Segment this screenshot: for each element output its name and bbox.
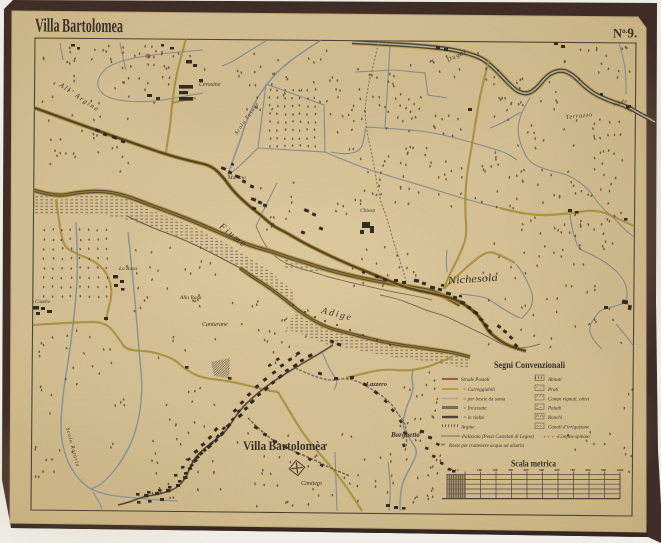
svg-text:Lazzero: Lazzero bbox=[365, 381, 388, 388]
svg-text:Strade Postali: Strade Postali bbox=[461, 378, 490, 383]
svg-text:Scala metrica: Scala metrica bbox=[511, 459, 556, 469]
svg-text:Villa Bartolomea: Villa Bartolomea bbox=[35, 16, 123, 38]
svg-text:Cimitero: Cimitero bbox=[301, 481, 322, 487]
svg-text:Confine spinato: Confine spinato bbox=[558, 435, 590, 440]
svg-text:Borghetto: Borghetto bbox=[390, 431, 420, 439]
svg-text:200: 200 bbox=[493, 468, 498, 472]
svg-text:Chiesa: Chiesa bbox=[360, 208, 376, 214]
svg-text:600: 600 bbox=[555, 468, 560, 472]
svg-text:Segni Convenzionali: Segni Convenzionali bbox=[494, 361, 565, 371]
svg-text:Villa Bartolomèa: Villa Bartolomèa bbox=[243, 439, 327, 453]
svg-text:Argine: Argine bbox=[460, 426, 475, 431]
svg-text:900: 900 bbox=[601, 468, 606, 472]
svg-text:500: 500 bbox=[539, 468, 544, 472]
svg-text:Cerosine: Cerosine bbox=[199, 82, 221, 88]
svg-text:400: 400 bbox=[524, 468, 529, 472]
svg-text:5 4 3 2 1: 5 4 3 2 1 bbox=[447, 468, 459, 472]
svg-text:Abitati: Abitati bbox=[547, 378, 562, 383]
svg-text:Prati: Prati bbox=[547, 388, 559, 393]
svg-text:Marana: Marana bbox=[227, 175, 246, 181]
svg-text:La Rasa: La Rasa bbox=[118, 266, 137, 272]
svg-text:= in rialzo: = in rialzo bbox=[463, 416, 485, 421]
svg-text:800: 800 bbox=[586, 468, 591, 472]
svg-text:Ronchi: Ronchi bbox=[547, 416, 563, 421]
svg-text:= per bestie da soma: = per bestie da soma bbox=[463, 398, 506, 403]
svg-text:lo Casette: lo Casette bbox=[30, 300, 51, 305]
svg-text:Campi vignati, oltivi: Campi vignati, oltivi bbox=[548, 398, 590, 403]
svg-text:Roste per trattenere acqua ad: Roste per trattenere acqua ad alzarla bbox=[448, 444, 524, 449]
svg-text:Paludi: Paludi bbox=[547, 407, 562, 412]
svg-text:1000: 1000 bbox=[617, 468, 624, 472]
svg-text:700: 700 bbox=[570, 468, 575, 472]
svg-text:Palizzata (Pezzi Castelati di: Palizzata (Pezzi Castelati di Legno) bbox=[461, 435, 534, 440]
svg-text:300: 300 bbox=[508, 468, 513, 472]
svg-text:100: 100 bbox=[477, 468, 482, 472]
svg-text:= Carreggiabili: = Carreggiabili bbox=[463, 388, 496, 393]
svg-text:Canturane: Canturane bbox=[202, 322, 228, 328]
svg-text:Alla Rasa: Alla Rasa bbox=[179, 295, 202, 301]
svg-text:Canali d’irrigazione: Canali d’irrigazione bbox=[548, 426, 590, 431]
svg-text:+ + + +: + + + + bbox=[543, 434, 559, 439]
svg-text:= Incassate: = Incassate bbox=[463, 407, 487, 412]
